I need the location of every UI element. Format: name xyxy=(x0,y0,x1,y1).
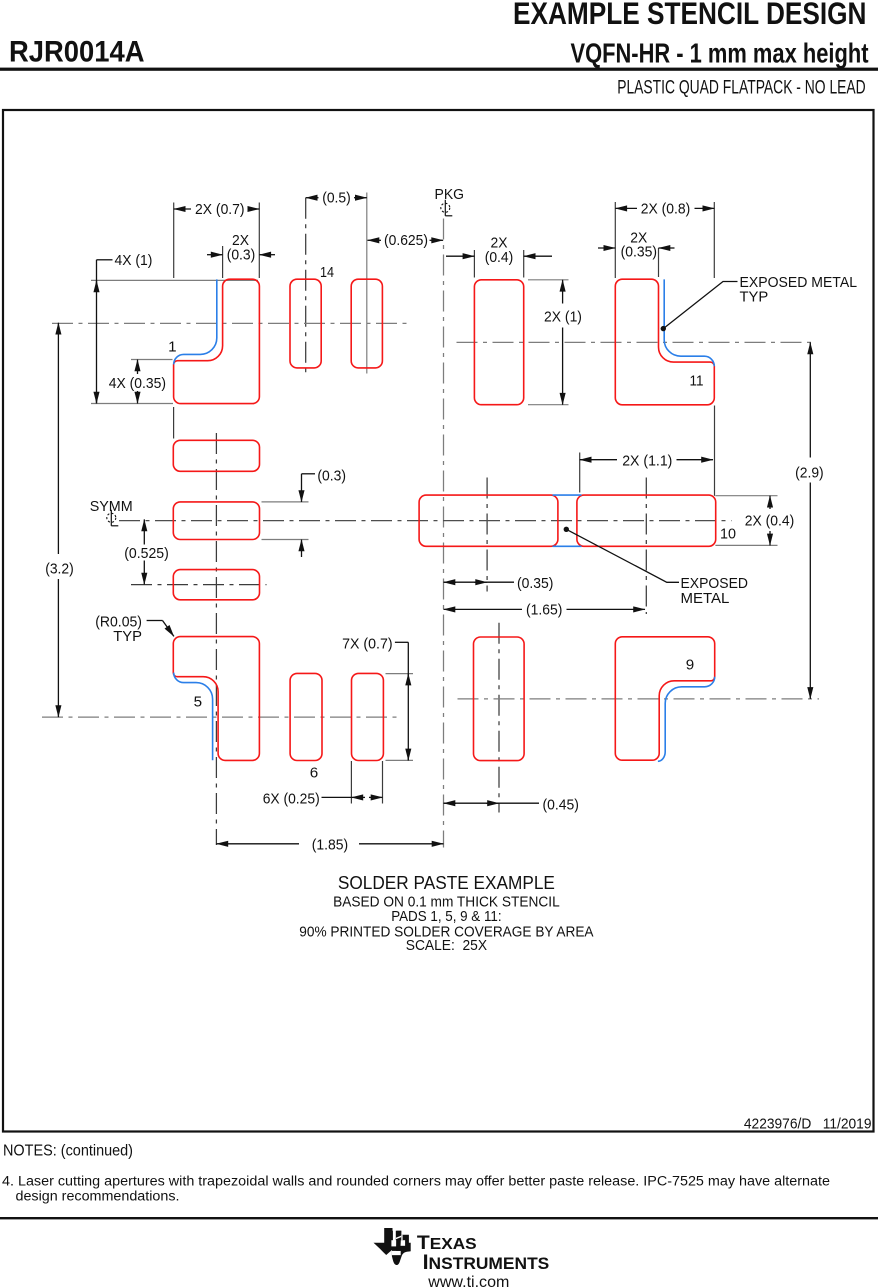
svg-text:NOTES: (continued): NOTES: (continued) xyxy=(3,1142,133,1159)
svg-text:2X (1.1): 2X (1.1) xyxy=(622,454,672,470)
svg-text:2X (0.7): 2X (0.7) xyxy=(195,202,245,218)
svg-text:VQFN-HR - 1 mm max height: VQFN-HR - 1 mm max height xyxy=(571,38,869,69)
svg-text:7X (0.7): 7X (0.7) xyxy=(342,636,393,652)
svg-text:EXAMPLE STENCIL DESIGN: EXAMPLE STENCIL DESIGN xyxy=(513,0,867,31)
svg-text:2X (0.4): 2X (0.4) xyxy=(745,514,795,530)
svg-text:PKG: PKG xyxy=(435,187,465,203)
svg-text:(2.9): (2.9) xyxy=(795,465,824,481)
svg-text:(3.2): (3.2) xyxy=(45,561,74,577)
svg-text:4. Laser cutting apertures wit: 4. Laser cutting apertures with trapezoi… xyxy=(2,1174,830,1190)
svg-text:11: 11 xyxy=(690,373,704,390)
svg-text:14: 14 xyxy=(320,264,334,281)
svg-text:(0.35): (0.35) xyxy=(621,245,657,261)
svg-text:2X (0.8): 2X (0.8) xyxy=(641,202,691,218)
svg-text:(0.3): (0.3) xyxy=(317,468,346,484)
svg-text:PLASTIC QUAD FLATPACK - NO LEA: PLASTIC QUAD FLATPACK - NO LEAD xyxy=(617,76,866,98)
svg-text:(0.525): (0.525) xyxy=(124,546,169,562)
svg-text:6: 6 xyxy=(310,765,318,782)
svg-text:(0.3): (0.3) xyxy=(227,247,256,263)
svg-text:SCALE: 25X: SCALE: 25X xyxy=(406,937,487,954)
svg-text:www.ti.com: www.ti.com xyxy=(427,1274,509,1288)
svg-text:4X (1): 4X (1) xyxy=(115,253,153,269)
svg-text:(1.65): (1.65) xyxy=(526,603,562,619)
svg-text:TYP: TYP xyxy=(113,629,142,645)
svg-text:9: 9 xyxy=(686,656,694,673)
svg-text:2X (1): 2X (1) xyxy=(544,310,582,326)
svg-text:TYP: TYP xyxy=(740,290,769,306)
svg-text:RJR0014A: RJR0014A xyxy=(9,36,145,69)
svg-text:(1.85): (1.85) xyxy=(312,838,348,854)
svg-text:5: 5 xyxy=(194,694,202,711)
svg-text:design recommendations.: design recommendations. xyxy=(16,1189,180,1205)
svg-text:(0.625): (0.625) xyxy=(384,233,428,249)
svg-text:METAL: METAL xyxy=(681,590,730,607)
svg-text:1: 1 xyxy=(168,338,176,355)
svg-text:4223976/D 11/2019: 4223976/D 11/2019 xyxy=(744,1116,872,1133)
svg-text:6X (0.25): 6X (0.25) xyxy=(263,791,320,807)
svg-text:(0.35): (0.35) xyxy=(517,576,553,592)
svg-text:10: 10 xyxy=(720,526,736,543)
svg-text:(0.4): (0.4) xyxy=(485,250,514,266)
svg-text:INSTRUMENTS: INSTRUMENTS xyxy=(423,1251,550,1274)
svg-text:(0.45): (0.45) xyxy=(543,797,579,813)
svg-text:(0.5): (0.5) xyxy=(322,190,351,206)
svg-text:4X (0.35): 4X (0.35) xyxy=(109,376,166,392)
svg-text:(R0.05): (R0.05) xyxy=(95,614,142,630)
svg-text:SOLDER PASTE EXAMPLE: SOLDER PASTE EXAMPLE xyxy=(338,872,555,893)
